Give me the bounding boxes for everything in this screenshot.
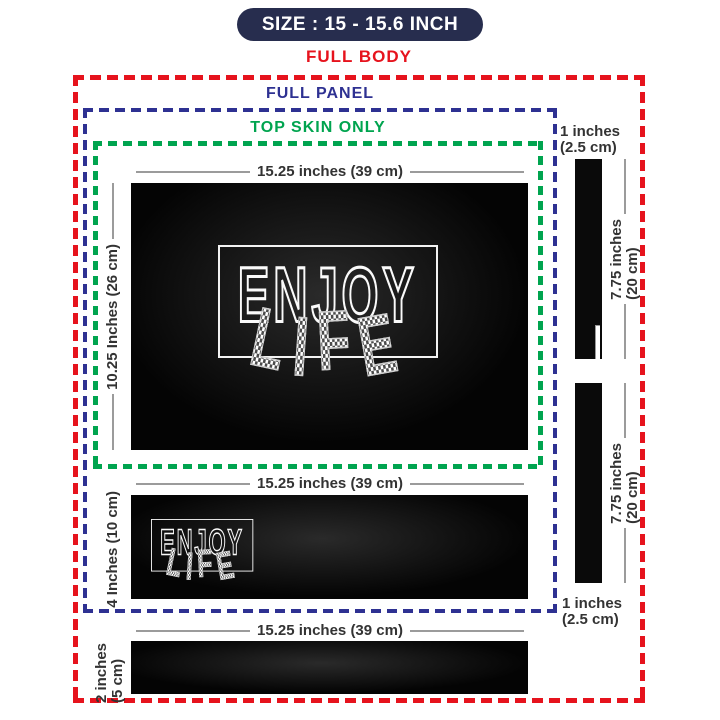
measure-line: [410, 171, 524, 173]
measure-line: [624, 159, 626, 214]
measure-line: [624, 528, 626, 583]
bottom-width-measurement: 15.25 inches (39 cm): [136, 623, 524, 639]
main-height-label: 10.25 Inches (26 cm): [105, 239, 121, 395]
measure-line: [112, 394, 114, 450]
dash-edge: [73, 75, 78, 703]
measure-line: [624, 304, 626, 359]
dash-edge: [538, 141, 543, 469]
measure-line: [410, 630, 524, 632]
side-bottom-height-measurement: 7.75 inches (20 cm): [606, 383, 644, 583]
laptop-skin-size-diagram: SIZE : 15 - 15.6 INCH FULL BODY FULL PAN…: [0, 0, 720, 720]
bottom-height-label: 2 inches (5 cm): [94, 638, 126, 708]
bottom-height-line2: (5 cm): [110, 643, 126, 703]
measure-line: [624, 383, 626, 438]
side-bottom-height-label: 7.75 inches (20 cm): [609, 438, 641, 529]
side-bottom-width-label: 1 inches (2.5 cm): [562, 596, 642, 628]
side-top-width-line1: 1 inches: [560, 124, 640, 140]
life-letter-e: E: [214, 545, 237, 586]
side-strip-bottom-panel: [575, 383, 602, 583]
bottom-strip-panel: [131, 641, 528, 694]
size-badge: SIZE : 15 - 15.6 INCH: [237, 8, 483, 41]
design-frame-mini: ENJOY LIFE: [151, 519, 253, 589]
life-letter-e: E: [353, 301, 403, 390]
palmrest-width-label: 15.25 inches (39 cm): [257, 476, 403, 492]
size-badge-label: SIZE : 15 - 15.6 INCH: [262, 14, 458, 36]
life-letter-i: I: [185, 547, 195, 586]
side-bottom-height-line2: (20 cm): [625, 443, 641, 524]
side-top-height-line1: 7.75 inches: [609, 219, 625, 300]
life-word: LIFE: [218, 311, 430, 365]
measure-line: [136, 171, 250, 173]
dash-edge: [93, 141, 543, 146]
side-strip-top-panel: [575, 159, 602, 359]
dash-edge: [73, 698, 645, 703]
dash-edge: [73, 75, 645, 80]
dash-edge: [553, 108, 557, 613]
life-letter-f: F: [315, 298, 352, 383]
side-top-width-label: 1 inches (2.5 cm): [560, 124, 640, 156]
main-height-measurement: 10.25 Inches (26 cm): [98, 183, 128, 450]
bottom-height-line1: 2 inches: [94, 643, 110, 703]
life-letter-i: I: [291, 305, 312, 390]
main-width-measurement: 15.25 inches (39 cm): [136, 164, 524, 180]
measure-line: [136, 630, 250, 632]
dash-edge: [83, 108, 557, 112]
measure-line: [136, 483, 250, 485]
dash-edge: [93, 464, 543, 469]
measure-line: [410, 483, 524, 485]
life-word: LIFE: [151, 550, 250, 575]
side-bottom-width-line2: (2.5 cm): [562, 612, 642, 628]
side-top-height-line2: (20 cm): [625, 219, 641, 300]
measure-line: [112, 183, 114, 239]
side-top-height-label: 7.75 inches (20 cm): [609, 214, 641, 305]
life-letter-f: F: [196, 544, 213, 584]
full-panel-label: FULL PANEL: [220, 85, 420, 103]
bottom-width-label: 15.25 inches (39 cm): [257, 623, 403, 639]
strip-notch: [595, 325, 600, 359]
dash-edge: [83, 108, 87, 613]
main-width-label: 15.25 inches (39 cm): [257, 164, 403, 180]
side-top-width-line2: (2.5 cm): [560, 140, 640, 156]
side-bottom-width-line1: 1 inches: [562, 596, 642, 612]
full-body-label: FULL BODY: [259, 47, 459, 67]
enjoy-life-design: ENJOY LIFE: [218, 245, 438, 395]
top-skin-label: TOP SKIN ONLY: [218, 119, 418, 137]
palmrest-height-label: 4 Inches (10 cm): [105, 486, 121, 613]
side-bottom-height-line1: 7.75 inches: [609, 443, 625, 524]
side-top-height-measurement: 7.75 inches (20 cm): [606, 159, 644, 359]
palmrest-height-measurement: 4 Inches (10 cm): [98, 486, 128, 606]
palmrest-width-measurement: 15.25 inches (39 cm): [136, 476, 524, 492]
bottom-height-measurement: 2 inches (5 cm): [92, 638, 128, 696]
